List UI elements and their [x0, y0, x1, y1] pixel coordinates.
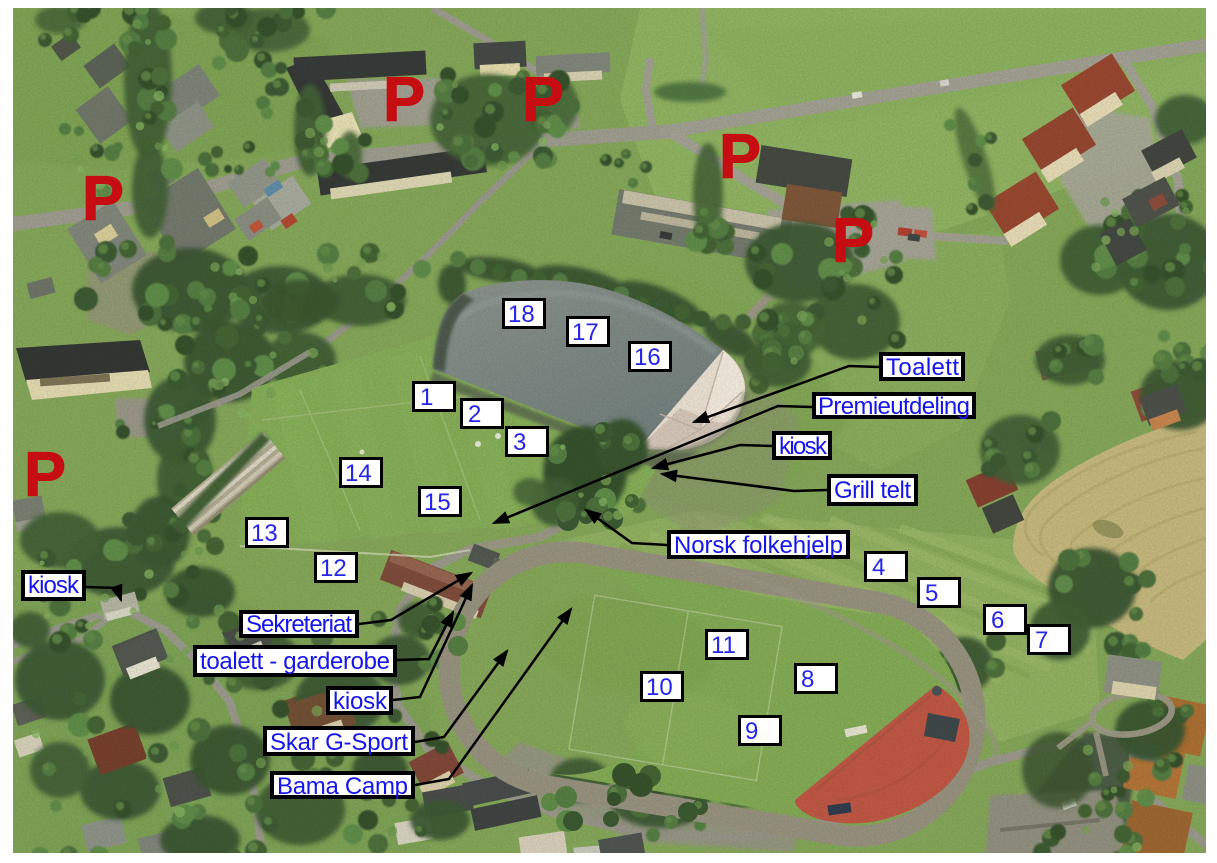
svg-text:2: 2: [468, 401, 481, 428]
svg-text:kiosk: kiosk: [333, 688, 388, 715]
svg-text:4: 4: [872, 554, 885, 581]
svg-text:Premieutdeling: Premieutdeling: [818, 393, 970, 420]
svg-text:P: P: [832, 206, 874, 276]
svg-text:17: 17: [572, 319, 599, 346]
svg-text:P: P: [82, 164, 124, 234]
svg-text:P: P: [24, 440, 66, 510]
svg-text:5: 5: [925, 580, 938, 607]
svg-text:6: 6: [991, 607, 1004, 634]
svg-text:1: 1: [420, 384, 433, 411]
svg-text:toalett - garderobe: toalett - garderobe: [200, 648, 390, 675]
svg-text:kiosk: kiosk: [779, 433, 828, 460]
svg-text:P: P: [522, 65, 564, 135]
svg-text:11: 11: [711, 632, 736, 659]
svg-text:Toalett: Toalett: [886, 354, 959, 381]
svg-text:P: P: [719, 122, 761, 192]
svg-text:15: 15: [424, 489, 451, 516]
svg-text:16: 16: [634, 344, 661, 371]
svg-text:10: 10: [646, 674, 673, 701]
svg-text:Bama Camp: Bama Camp: [277, 773, 408, 800]
svg-text:18: 18: [508, 301, 535, 328]
svg-text:12: 12: [320, 555, 347, 582]
svg-text:8: 8: [801, 666, 814, 693]
svg-text:Skar G-Sport: Skar G-Sport: [270, 729, 408, 756]
svg-text:P: P: [383, 65, 425, 135]
svg-text:3: 3: [513, 429, 526, 456]
svg-text:14: 14: [345, 460, 372, 487]
svg-text:13: 13: [251, 520, 278, 547]
svg-text:Norsk folkehjelp: Norsk folkehjelp: [674, 532, 843, 559]
svg-text:kiosk: kiosk: [28, 572, 80, 599]
svg-text:7: 7: [1035, 627, 1048, 654]
svg-text:Grill telt: Grill telt: [834, 477, 911, 504]
svg-text:9: 9: [745, 718, 758, 745]
svg-text:Sekreteriat: Sekreteriat: [246, 611, 352, 638]
